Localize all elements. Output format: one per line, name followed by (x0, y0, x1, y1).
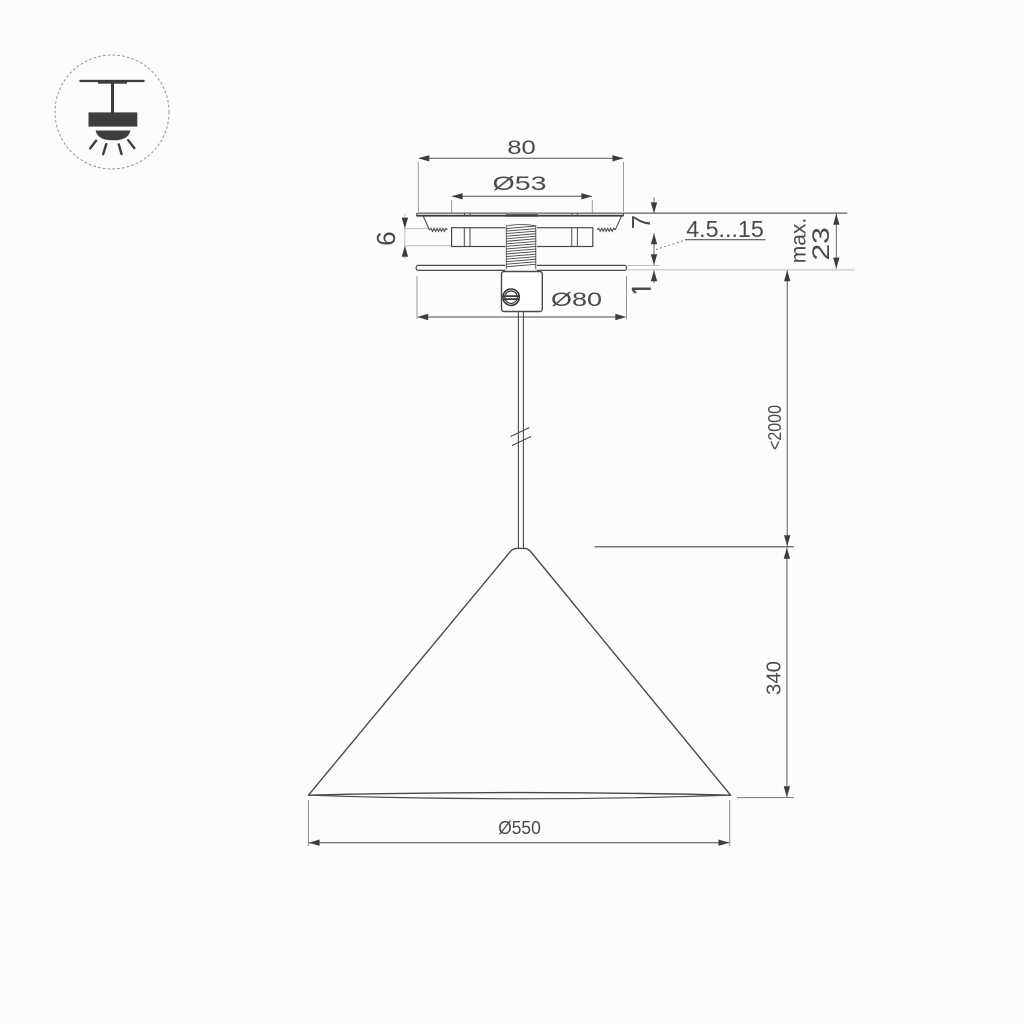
svg-text:max.: max. (788, 218, 811, 264)
svg-text:80: 80 (507, 138, 536, 159)
svg-text:23: 23 (808, 227, 835, 260)
svg-text:Ø550: Ø550 (498, 818, 541, 838)
svg-text:340: 340 (762, 661, 785, 695)
svg-text:7: 7 (628, 215, 656, 229)
svg-text:6: 6 (371, 231, 401, 245)
svg-text:Ø53: Ø53 (493, 174, 547, 195)
svg-text:Ø80: Ø80 (551, 289, 602, 311)
svg-text:4.5...15: 4.5...15 (686, 216, 764, 242)
svg-text:<2000: <2000 (765, 405, 785, 450)
